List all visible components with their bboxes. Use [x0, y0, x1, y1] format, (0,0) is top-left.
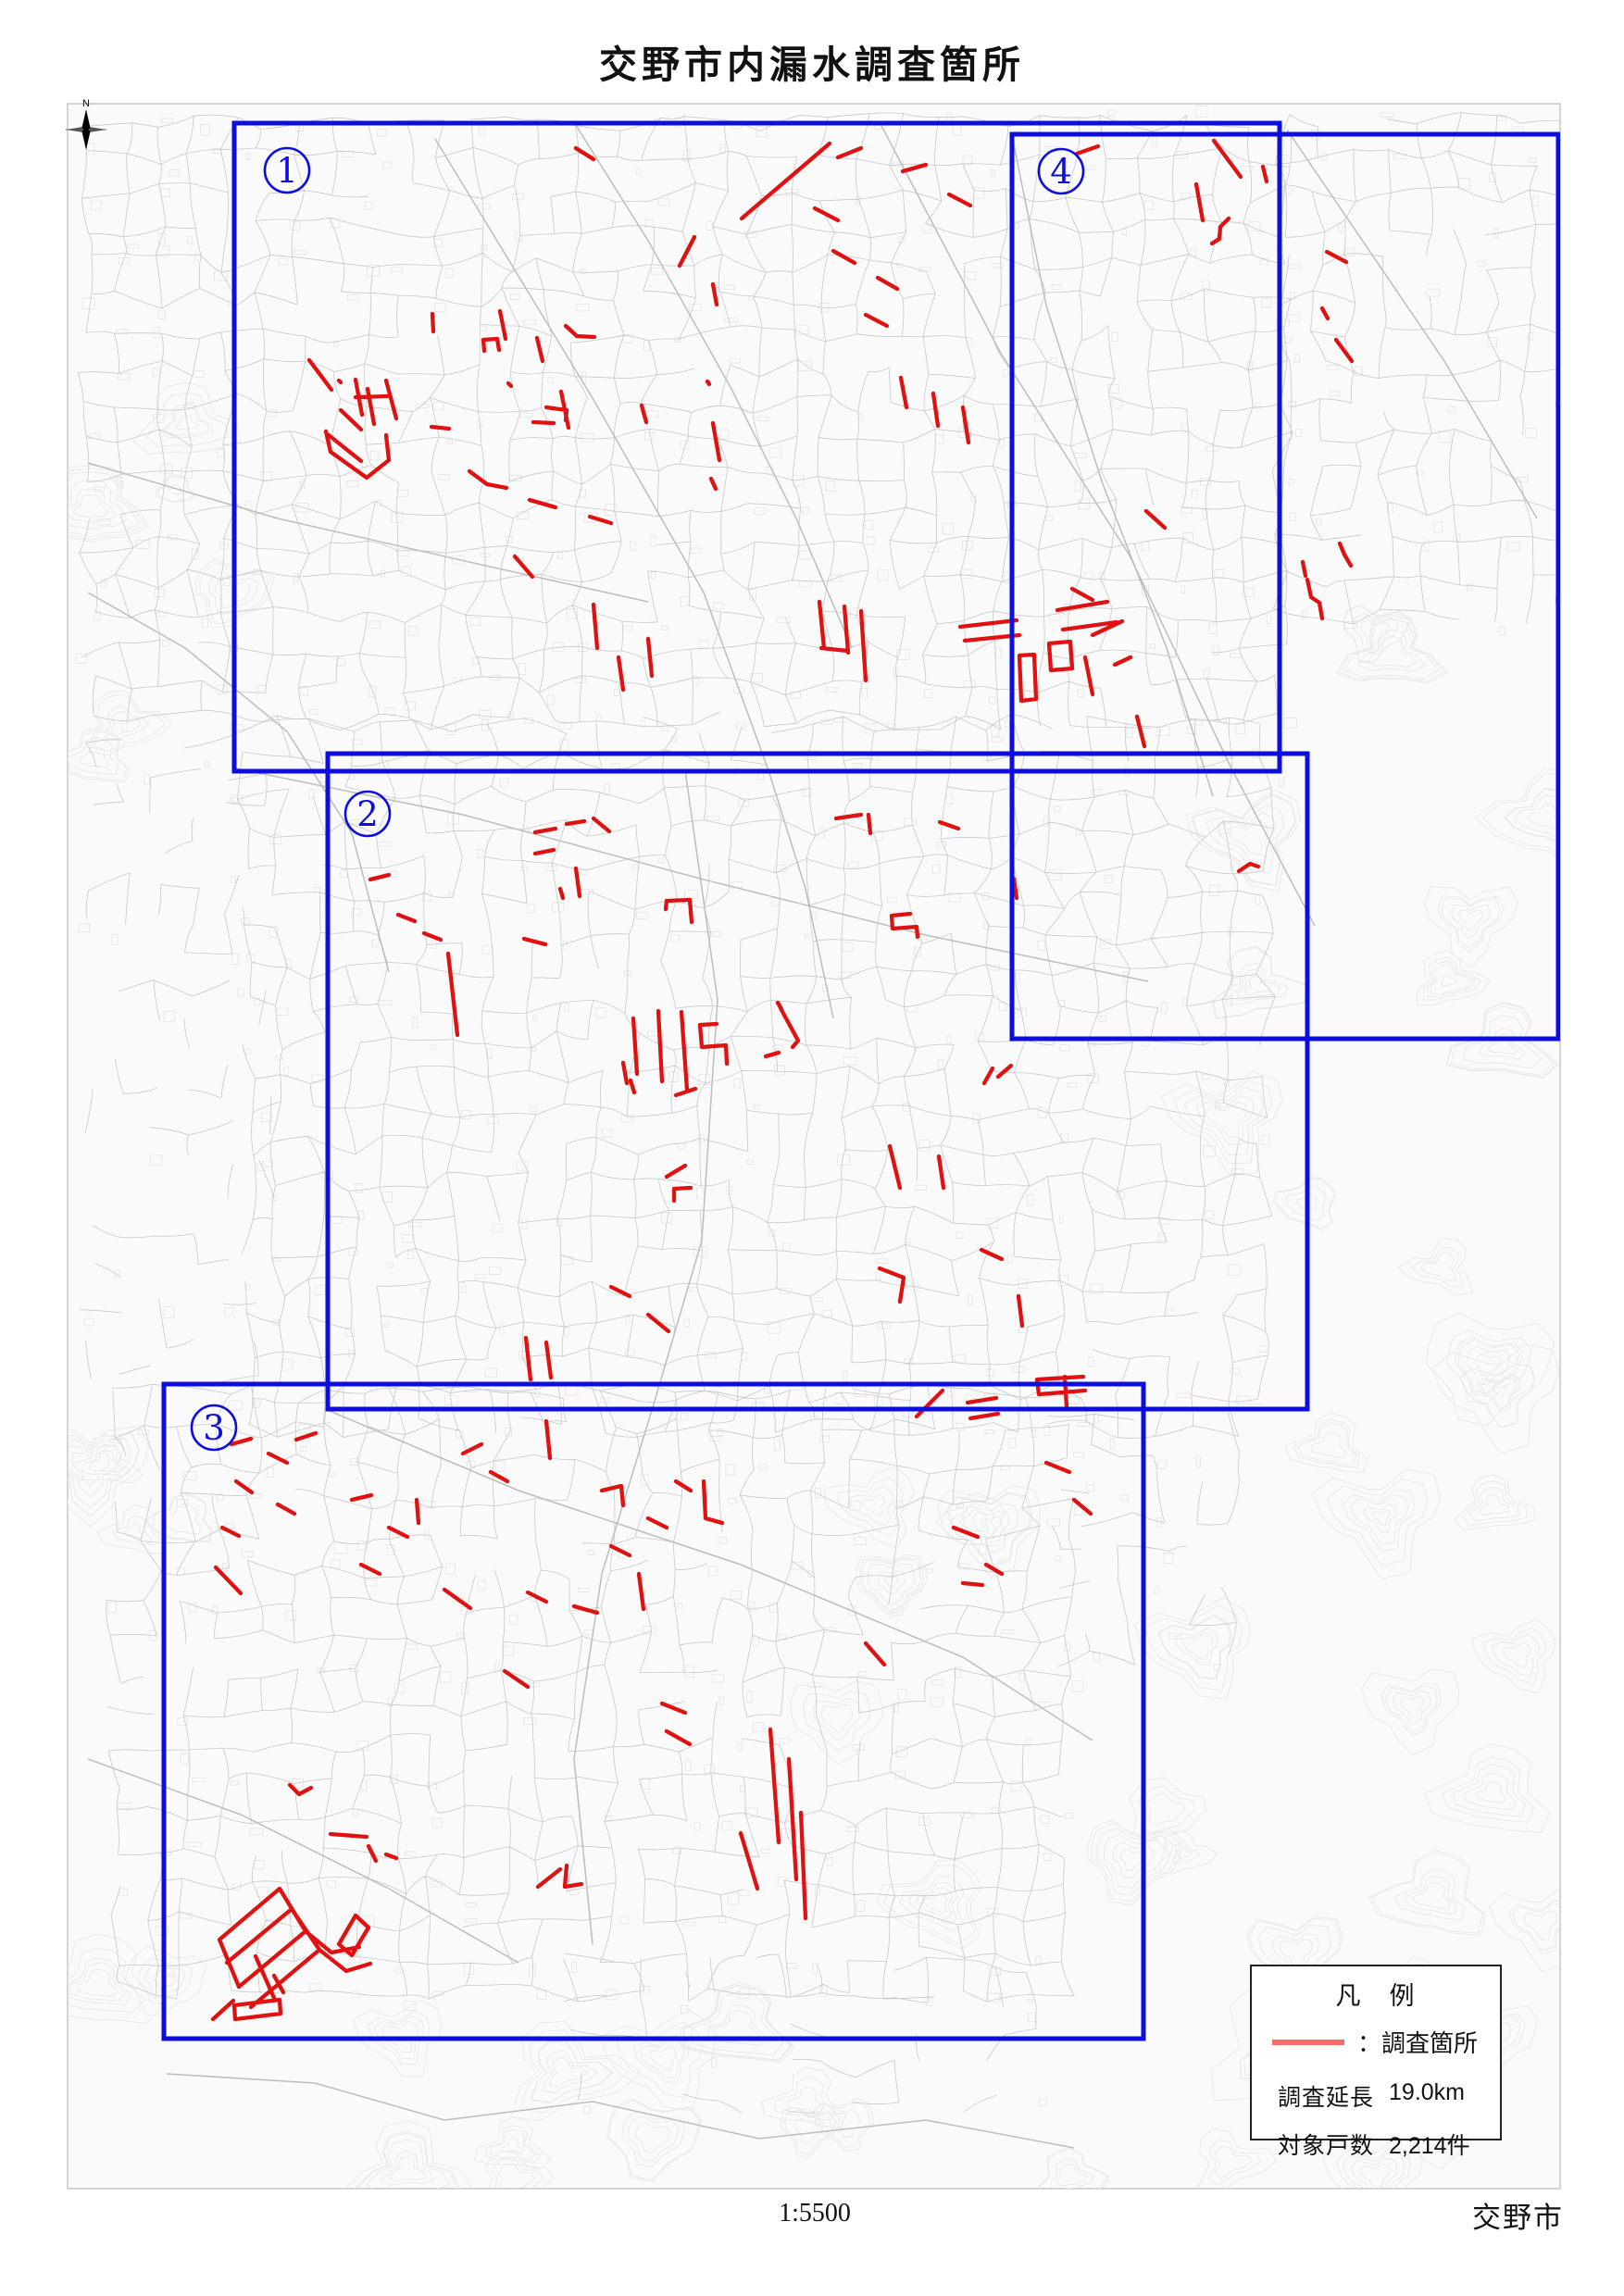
legend-key-row: ：調査箇所 [1272, 2025, 1500, 2059]
survey-length-row: 調査延長 19.0km [1278, 2079, 1500, 2113]
city-map-canvas: 1234 N [0, 0, 1624, 2296]
target-households-label: 対象戸数 [1278, 2128, 1374, 2161]
legend-title: 凡 例 [1252, 1976, 1500, 2012]
survey-length-label: 調査延長 [1278, 2079, 1374, 2113]
north-label: N [82, 98, 90, 109]
city-credit: 交野市 [1472, 2194, 1564, 2236]
area-number-label-3: 3 [203, 1408, 225, 1448]
map-frame [68, 104, 1560, 2189]
legend: 凡 例 ：調査箇所 調査延長 19.0km 対象戸数 2,214件 [1250, 1965, 1502, 2140]
survey-line-swatch [1272, 2040, 1344, 2045]
area-number-label-4: 4 [1050, 152, 1072, 192]
survey-length-value: 19.0km [1389, 2079, 1465, 2113]
target-households-row: 対象戸数 2,214件 [1278, 2128, 1500, 2161]
area-number-label-2: 2 [356, 794, 379, 834]
target-households-value: 2,214件 [1389, 2128, 1470, 2161]
survey-line-label: ：調査箇所 [1357, 2025, 1478, 2059]
area-number-label-1: 1 [276, 151, 298, 191]
map-scale: 1:5500 [722, 2199, 907, 2228]
map-document-page: 交野市内漏水調査箇所 1234 N 凡 例 ：調査箇所 調査延長 19.0km … [0, 0, 1624, 2296]
